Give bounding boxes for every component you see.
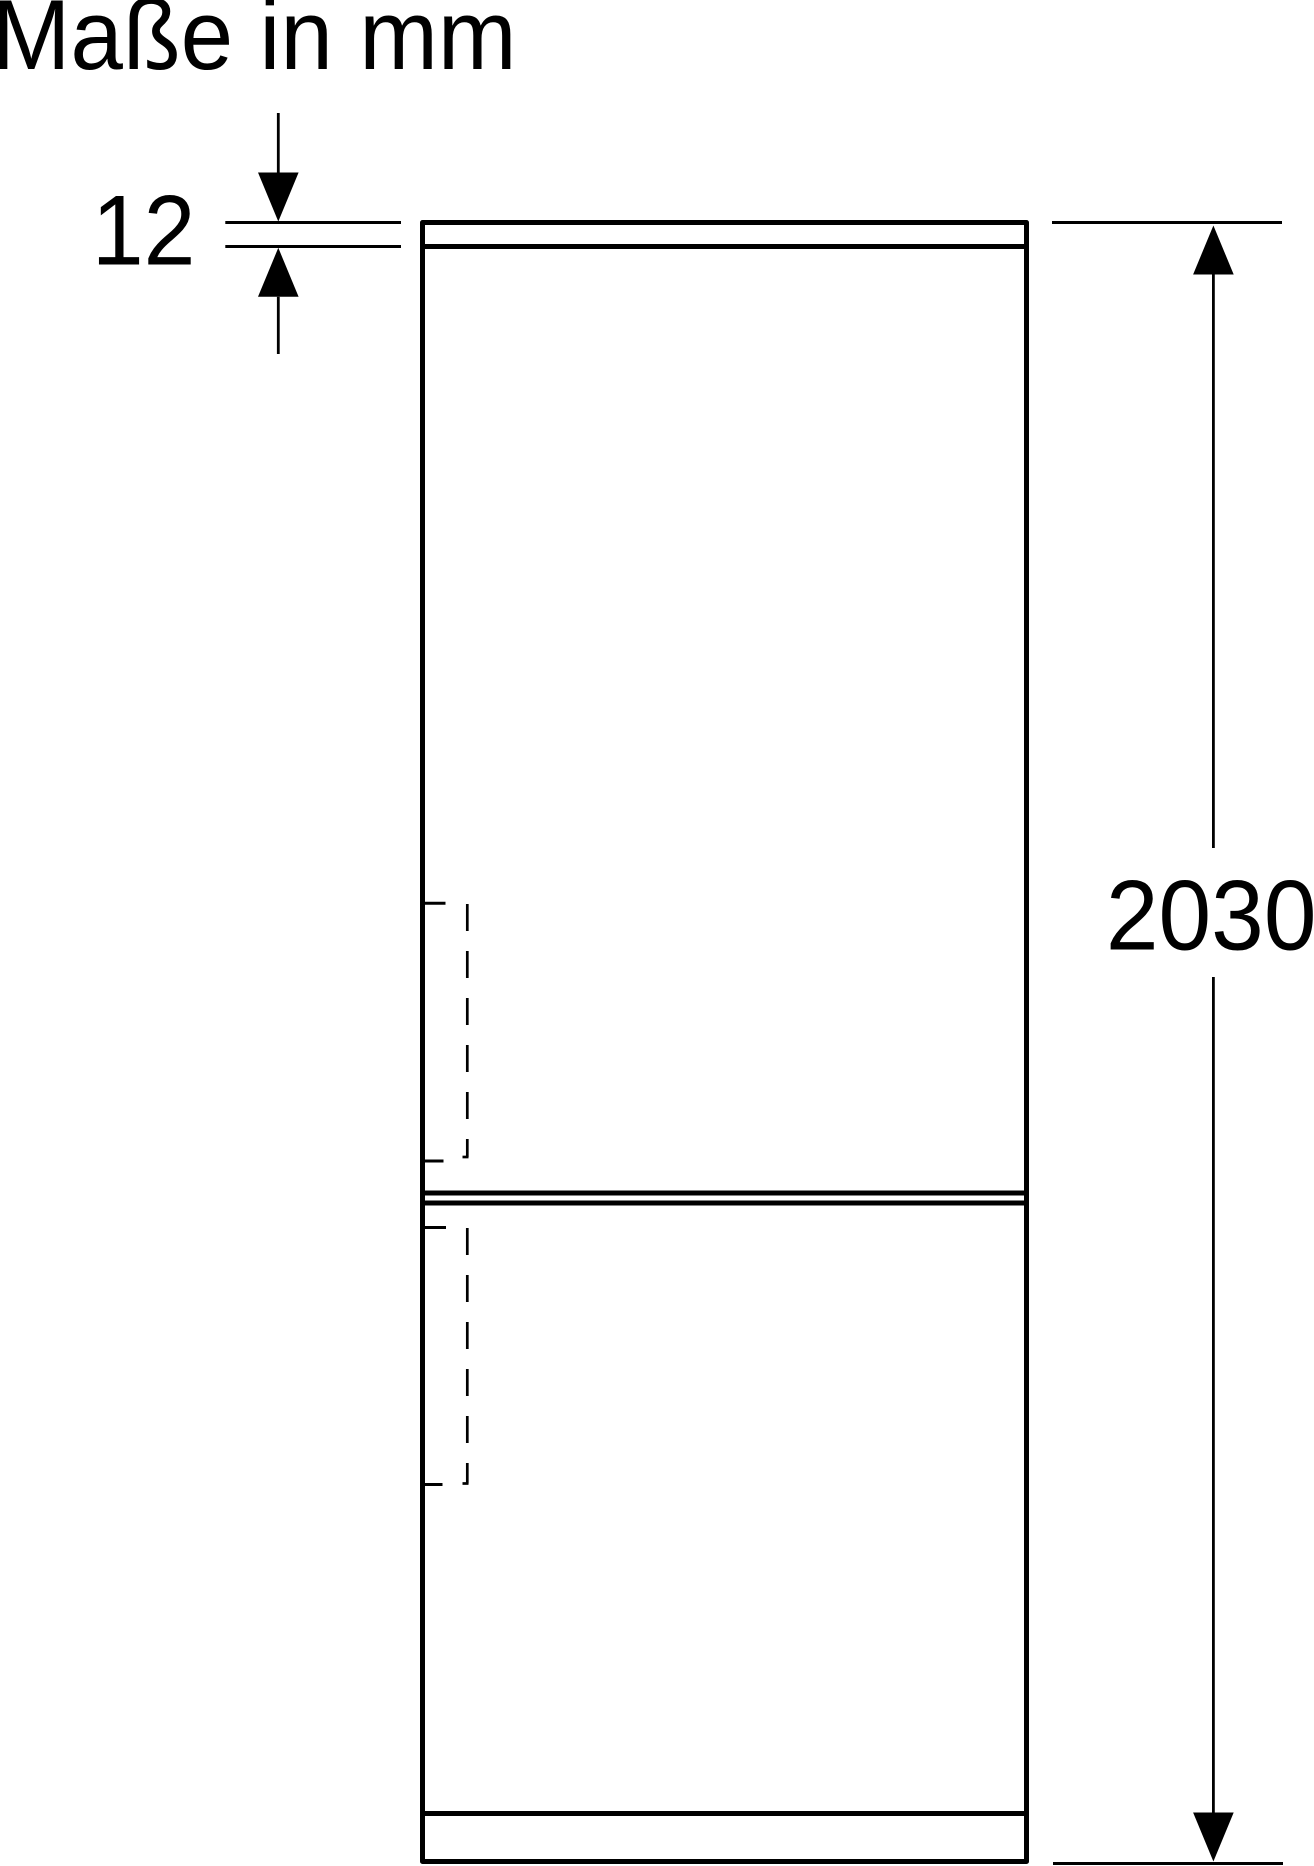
svg-text:12: 12 bbox=[92, 175, 195, 286]
svg-text:2030: 2030 bbox=[1106, 859, 1314, 970]
svg-text:Maße in mm: Maße in mm bbox=[0, 0, 517, 90]
